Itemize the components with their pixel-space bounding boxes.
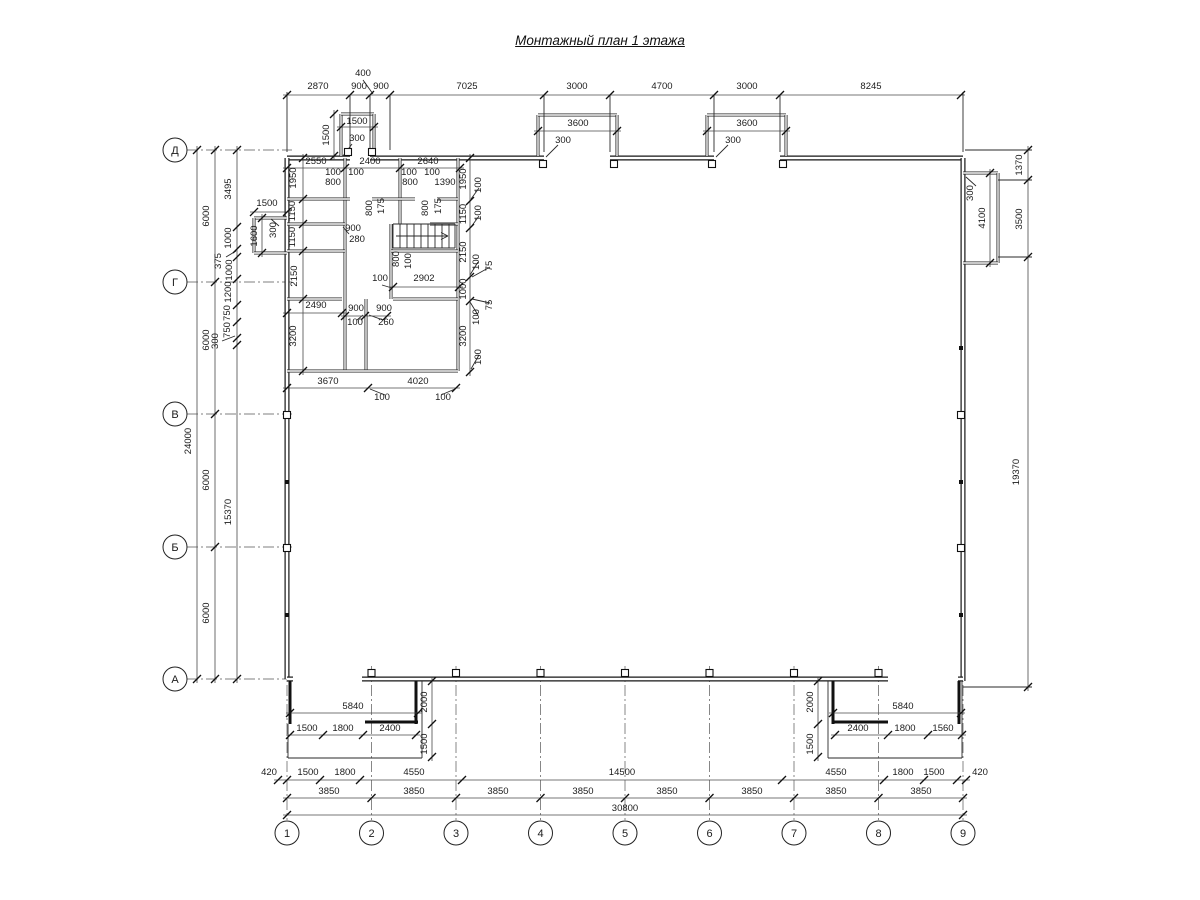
column-marker — [958, 545, 965, 552]
floor-plan-canvas: 2870900900400702530004700300082451500300… — [0, 0, 1200, 900]
column-marker — [780, 161, 787, 168]
dimension-label: 3850 — [403, 786, 424, 797]
axis-bubble-label: 1 — [284, 828, 290, 840]
dimension-label: 6000 — [201, 602, 212, 623]
axis-bubble-label: В — [171, 409, 178, 421]
dimension-label: 3200 — [458, 325, 469, 346]
dimension-label: 400 — [355, 68, 371, 79]
dimension-label: 5840 — [892, 701, 913, 712]
axis-bubble-label: 2 — [368, 828, 374, 840]
column-marker — [453, 670, 460, 677]
dimension-label: 300 — [555, 135, 571, 146]
dimension-label: 375 — [213, 253, 224, 269]
column-marker — [611, 161, 618, 168]
dimension-label: 75 — [484, 300, 495, 311]
dimension-label: 1390 — [434, 177, 455, 188]
dimension-label: 175 — [376, 198, 387, 214]
dimension-label: 3670 — [317, 376, 338, 387]
column-marker — [369, 149, 376, 156]
dimension-label: 1950 — [458, 168, 469, 189]
dimension-label: 300 — [965, 185, 976, 201]
axis-bubble-label: Г — [172, 277, 178, 289]
dimension-label: 175 — [433, 198, 444, 214]
drawing-title: Монтажный план 1 этажа — [0, 33, 1200, 48]
column-marker — [958, 412, 965, 419]
axis-bubble-label: 7 — [791, 828, 797, 840]
dimension-label: 800 — [420, 200, 431, 216]
wall-marker — [285, 480, 289, 484]
dimension-label: 1370 — [1014, 154, 1025, 175]
column-marker — [284, 545, 291, 552]
column-marker — [537, 670, 544, 677]
dimension-label: 800 — [402, 177, 418, 188]
dimension-label: 30800 — [612, 803, 638, 814]
dimension-label: 900 — [348, 303, 364, 314]
axis-bubble-label: 5 — [622, 828, 628, 840]
column-marker — [368, 670, 375, 677]
dimension-label: 1950 — [288, 167, 299, 188]
dimension-label: 2000 — [805, 691, 816, 712]
column-marker — [284, 412, 291, 419]
column-marker — [622, 670, 629, 677]
dimension-label: 100 — [473, 349, 484, 365]
wall-marker — [959, 613, 963, 617]
axis-bubble-label: А — [171, 674, 179, 686]
dimension-label: 1500 — [256, 198, 277, 209]
axis-bubble-label: 9 — [960, 828, 966, 840]
dimension-label: 1800 — [334, 767, 355, 778]
dimension-label: 3200 — [288, 325, 299, 346]
dimension-label: 100 — [435, 392, 451, 403]
column-marker — [540, 161, 547, 168]
dimension-label: 100 — [473, 205, 484, 221]
dimension-label: 100 — [374, 392, 390, 403]
dimension-label: 100 — [471, 309, 482, 325]
dimension-label: 100 — [372, 273, 388, 284]
dimension-label: 300 — [349, 133, 365, 144]
leader-line — [716, 145, 728, 157]
dimension-label: 750 — [222, 322, 233, 338]
dimension-label: 900 — [376, 303, 392, 314]
dimension-label: 750 — [222, 305, 233, 321]
dimension-label: 2640 — [417, 156, 438, 167]
dimension-label: 900 — [351, 81, 367, 92]
dimension-label: 300 — [725, 135, 741, 146]
wall-marker — [285, 613, 289, 617]
dimension-label: 1150 — [287, 227, 298, 247]
dimension-label: 2400 — [359, 156, 380, 167]
dimension-label: 5840 — [342, 701, 363, 712]
dimension-label: 1000 — [458, 278, 469, 299]
leader-line — [966, 177, 976, 186]
leader-line — [546, 145, 558, 157]
dimension-label: 420 — [972, 767, 988, 778]
dimension-label: 6000 — [201, 205, 212, 226]
dimension-label: 1150 — [287, 201, 298, 221]
dimension-label: 3850 — [487, 786, 508, 797]
dimension-label: 1500 — [419, 733, 430, 754]
dimension-label: 300 — [268, 222, 279, 238]
dimension-label: 800 — [364, 200, 375, 216]
dimension-label: 1150 — [458, 204, 469, 224]
dimension-label: 3850 — [656, 786, 677, 797]
dimension-label: 1500 — [805, 733, 816, 754]
dimension-label: 1000 — [224, 259, 235, 280]
axis-bubble-label: Б — [171, 542, 178, 554]
dimension-label: 100 — [403, 253, 414, 269]
column-marker — [706, 670, 713, 677]
dimension-label: 14500 — [609, 767, 635, 778]
axis-bubble-label: 6 — [706, 828, 712, 840]
dimension-label: 3000 — [566, 81, 587, 92]
axis-bubble-label: Д — [171, 145, 179, 157]
dimension-label: 2902 — [413, 273, 434, 284]
dimension-label: 800 — [325, 177, 341, 188]
dimension-label: 2150 — [458, 241, 469, 262]
dimension-label: 1200 — [223, 281, 234, 302]
dimension-label: 1500 — [296, 723, 317, 734]
dimension-label: 4100 — [977, 207, 988, 228]
column-marker — [791, 670, 798, 677]
column-marker — [875, 670, 882, 677]
axis-bubble-label: 4 — [537, 828, 543, 840]
dimension-label: 3850 — [910, 786, 931, 797]
dimension-label: 900 — [345, 223, 361, 234]
dimension-label: 3495 — [223, 178, 234, 199]
dimension-label: 1500 — [346, 116, 367, 127]
dimension-label: 6000 — [201, 469, 212, 490]
dimension-label: 1500 — [321, 124, 332, 145]
dimension-label: 1800 — [332, 723, 353, 734]
dimension-label: 7025 — [456, 81, 477, 92]
dimension-label: 1600 — [249, 225, 260, 246]
dimension-label: 4550 — [825, 767, 846, 778]
dimension-label: 100 — [347, 317, 363, 328]
dimension-label: 1000 — [223, 227, 234, 248]
dimension-label: 3600 — [736, 118, 757, 129]
wall-marker — [959, 346, 963, 350]
wall-marker — [959, 480, 963, 484]
dimension-label: 8245 — [860, 81, 881, 92]
dimension-label: 800 — [391, 251, 402, 267]
dimension-label: 3850 — [741, 786, 762, 797]
dimension-label: 100 — [473, 177, 484, 193]
dimension-label: 3000 — [736, 81, 757, 92]
dimension-label: 2400 — [379, 723, 400, 734]
dimension-label: 1800 — [894, 723, 915, 734]
dimension-label: 100 — [348, 167, 364, 178]
dimension-label: 19370 — [1011, 459, 1022, 485]
dimension-label: 24000 — [183, 428, 194, 454]
dimension-label: 75 — [484, 261, 495, 272]
column-marker — [345, 149, 352, 156]
dimension-label: 2400 — [847, 723, 868, 734]
dimension-label: 4700 — [651, 81, 672, 92]
dimension-label: 2000 — [419, 691, 430, 712]
dimension-label: 3500 — [1014, 208, 1025, 229]
dimension-label: 420 — [261, 767, 277, 778]
dimension-label: 3850 — [825, 786, 846, 797]
dimension-label: 3600 — [567, 118, 588, 129]
dimension-label: 2150 — [289, 265, 300, 286]
dimension-label: 100 — [471, 254, 482, 270]
drawing-sheet: Монтажный план 1 этажа 28709009004007025… — [0, 0, 1200, 900]
axis-bubble-label: 8 — [875, 828, 881, 840]
dimension-label: 2490 — [305, 300, 326, 311]
dimension-label: 15370 — [223, 499, 234, 525]
column-marker — [709, 161, 716, 168]
dimension-label: 3850 — [318, 786, 339, 797]
dimension-label: 2550 — [305, 156, 326, 167]
dimension-label: 1800 — [892, 767, 913, 778]
axis-bubble-label: 3 — [453, 828, 459, 840]
dimension-label: 3850 — [572, 786, 593, 797]
dimension-label: 280 — [349, 234, 365, 245]
dimension-label: 2870 — [307, 81, 328, 92]
dimension-label: 1500 — [297, 767, 318, 778]
dimension-label: 300 — [210, 333, 221, 349]
dimension-label: 1500 — [923, 767, 944, 778]
dimension-label: 4550 — [403, 767, 424, 778]
dimension-label: 260 — [378, 317, 394, 328]
dimension-label: 1560 — [932, 723, 953, 734]
dimension-label: 900 — [373, 81, 389, 92]
dimension-label: 4020 — [407, 376, 428, 387]
